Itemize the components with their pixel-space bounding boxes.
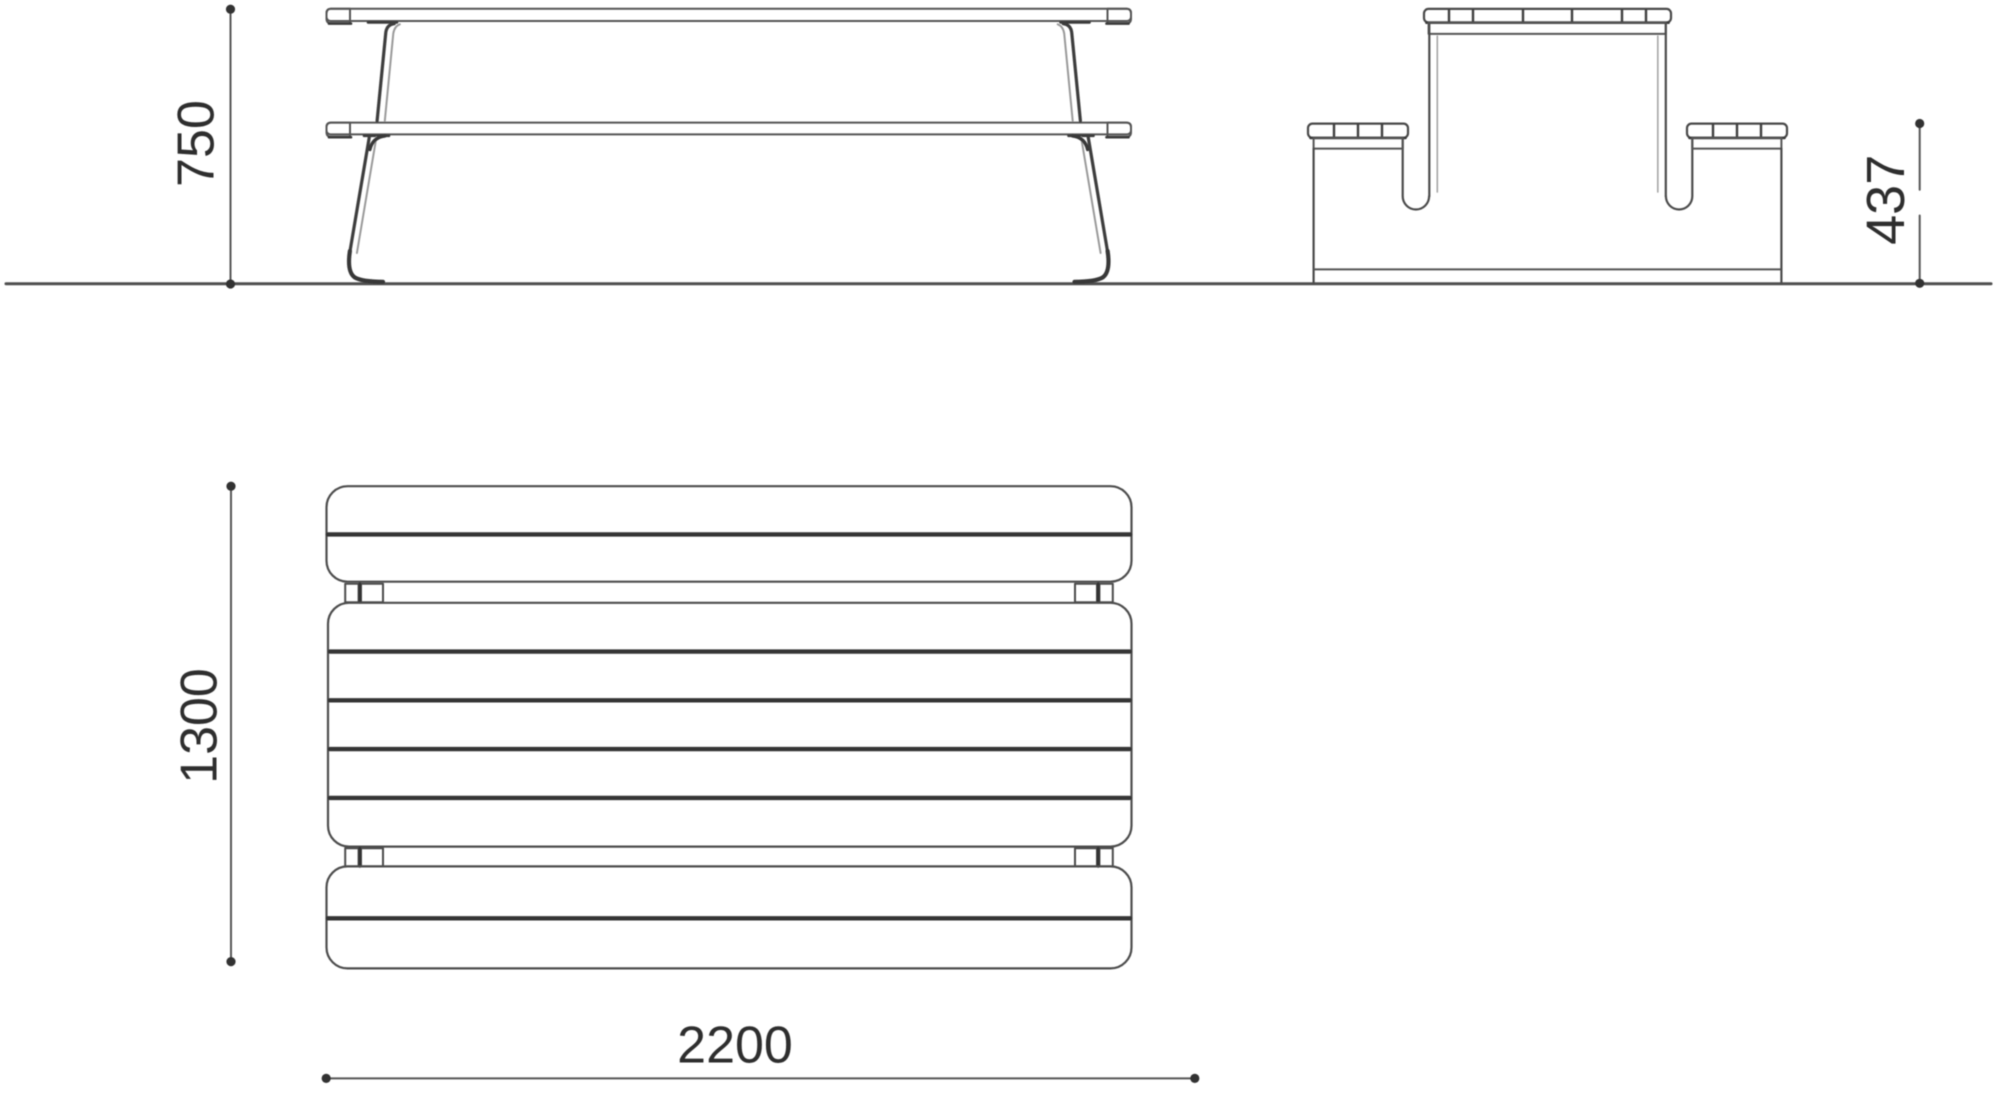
svg-text:437: 437 — [1856, 155, 1916, 245]
svg-text:1300: 1300 — [171, 668, 229, 784]
svg-text:750: 750 — [168, 100, 226, 187]
svg-text:2200: 2200 — [677, 1017, 793, 1075]
